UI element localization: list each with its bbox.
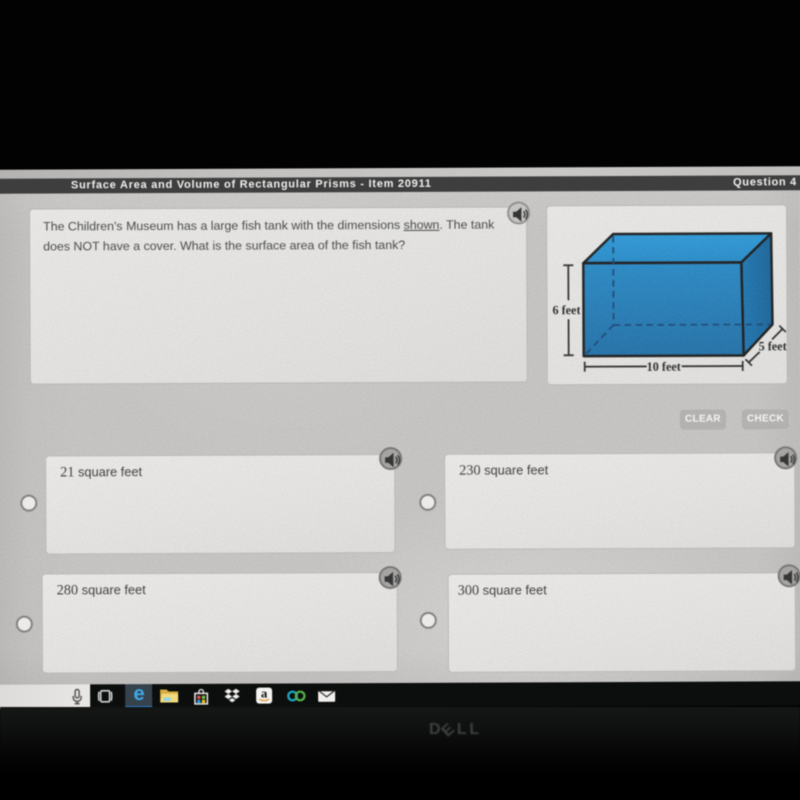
svg-text:10 feet: 10 feet — [647, 360, 681, 374]
svg-text:5 feet: 5 feet — [759, 339, 787, 353]
svg-text:6 feet: 6 feet — [552, 303, 580, 317]
